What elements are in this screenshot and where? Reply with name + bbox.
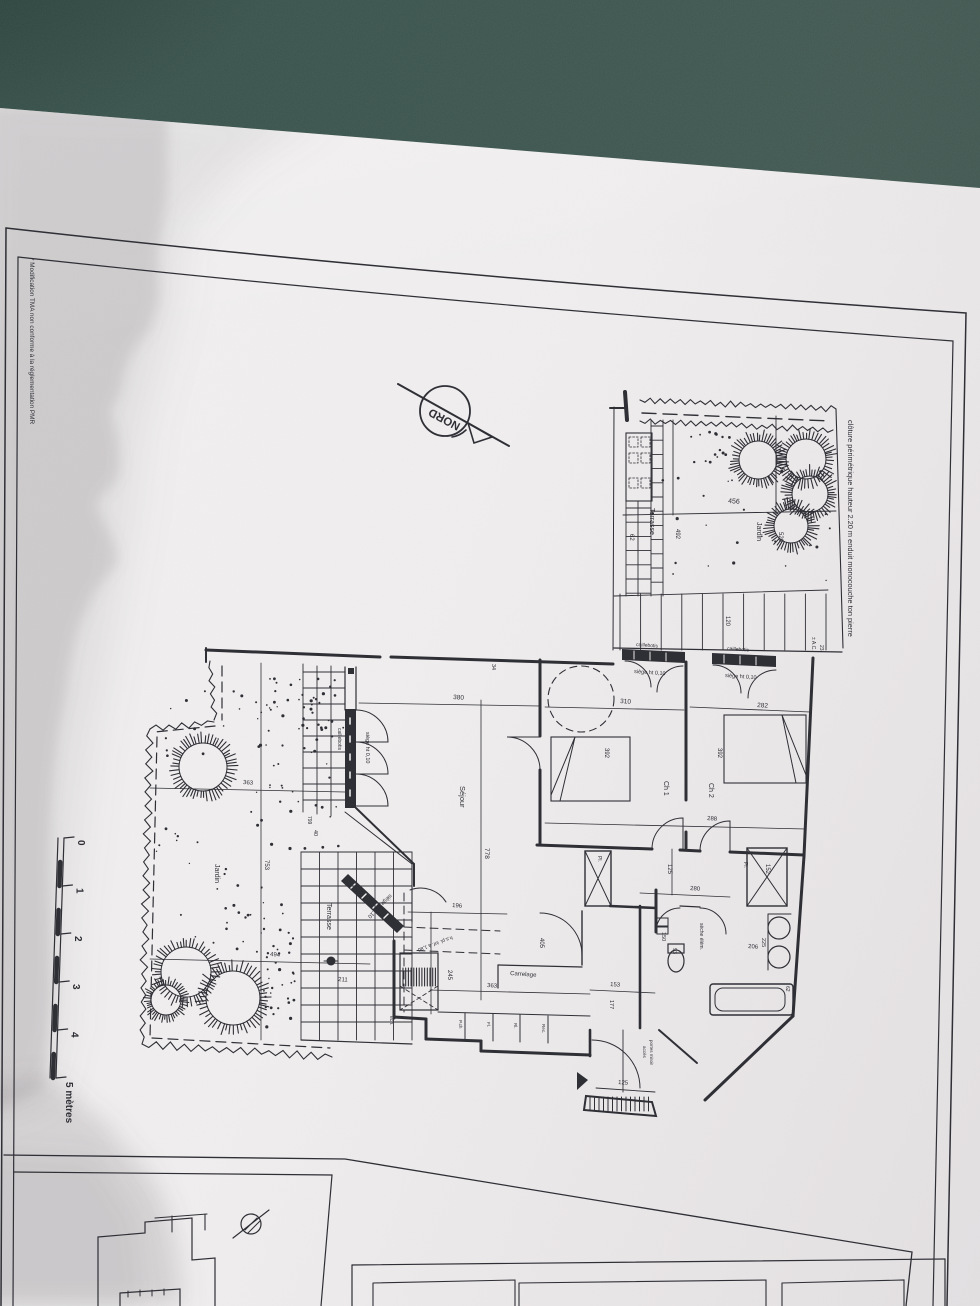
svg-text:778: 778: [483, 848, 490, 859]
svg-text:1: 1: [73, 888, 84, 894]
svg-text:520: 520: [777, 532, 783, 543]
svg-text:363: 363: [487, 983, 498, 990]
svg-text:siège ht 0,10: siège ht 0,10: [725, 673, 757, 681]
svg-text:405: 405: [538, 938, 544, 949]
svg-text:Carrelage: Carrelage: [510, 971, 537, 979]
svg-text:288: 288: [707, 816, 718, 823]
svg-text:392: 392: [603, 748, 609, 759]
svg-text:62: 62: [628, 534, 634, 541]
svg-text:245: 245: [446, 970, 452, 981]
svg-text:caillebotis: caillebotis: [336, 728, 342, 750]
svg-text:2: 2: [72, 936, 83, 942]
svg-text:456: 456: [728, 498, 740, 506]
svg-text:Jardin: Jardin: [755, 522, 762, 541]
svg-text:799: 799: [306, 816, 312, 825]
svg-text:Pl.: Pl.: [596, 856, 602, 862]
svg-text:93: 93: [671, 948, 677, 954]
svg-text:Séjour: Séjour: [458, 786, 467, 808]
svg-text:accès: accès: [642, 1046, 647, 1059]
svg-text:portes miroir: portes miroir: [649, 1040, 654, 1066]
svg-text:Ch 1: Ch 1: [662, 781, 669, 796]
svg-text:753: 753: [263, 860, 269, 871]
svg-text:62: 62: [784, 986, 790, 992]
svg-text:153: 153: [610, 982, 621, 989]
svg-text:Pl.: Pl.: [742, 862, 748, 868]
svg-text:363: 363: [243, 780, 254, 787]
svg-text:177: 177: [608, 1000, 614, 1009]
svg-text:125: 125: [618, 1080, 629, 1087]
svg-text:clôture périmétrique hauteur 2: clôture périmétrique hauteur 2.20 m endu…: [846, 420, 855, 637]
svg-text:caillebotis: caillebotis: [727, 646, 750, 654]
svg-text:* Modification TMA non conform: * Modification TMA non conforme à la rég…: [28, 258, 35, 425]
svg-text:3: 3: [70, 984, 81, 990]
svg-text:152: 152: [764, 864, 770, 875]
svg-text:Ch 2: Ch 2: [707, 783, 714, 798]
svg-text:Terrasse: Terrasse: [325, 903, 332, 930]
svg-text:310: 310: [620, 698, 632, 706]
svg-text:211: 211: [338, 977, 349, 984]
svg-text:492: 492: [674, 529, 680, 540]
svg-text:282: 282: [757, 702, 769, 710]
svg-text:225: 225: [760, 938, 766, 947]
svg-text:150: 150: [660, 932, 666, 941]
svg-text:34: 34: [490, 664, 496, 670]
svg-text:siège ht 0,10: siège ht 0,10: [634, 669, 666, 677]
svg-text:Fl.: Fl.: [486, 1022, 491, 1027]
svg-text:± A.C.: ± A.C.: [810, 637, 816, 651]
svg-text:23: 23: [818, 645, 824, 651]
svg-text:392: 392: [716, 748, 722, 759]
svg-text:Jardin: Jardin: [213, 864, 220, 883]
svg-text:125: 125: [666, 864, 672, 875]
svg-text:40: 40: [312, 830, 318, 836]
svg-text:380: 380: [453, 694, 465, 702]
svg-text:5 mètres: 5 mètres: [63, 1082, 74, 1124]
svg-text:P.ch: P.ch: [458, 1020, 463, 1029]
svg-text:sèche élém.: sèche élém.: [698, 923, 704, 950]
svg-text:280: 280: [690, 886, 701, 893]
svg-text:Rec.: Rec.: [541, 1024, 546, 1033]
svg-text:120: 120: [724, 616, 730, 627]
svg-text:206: 206: [748, 944, 759, 951]
svg-text:siège ht 0,10: siège ht 0,10: [364, 732, 370, 764]
svg-text:4: 4: [69, 1032, 80, 1038]
svg-text:Terrasse: Terrasse: [648, 508, 655, 535]
svg-text:0: 0: [75, 840, 86, 846]
svg-text:Rl.: Rl.: [513, 1023, 518, 1029]
svg-text:196: 196: [452, 903, 463, 910]
svg-text:h.s.pl. inf. à 1,80: h.s.pl. inf. à 1,80: [417, 934, 454, 952]
